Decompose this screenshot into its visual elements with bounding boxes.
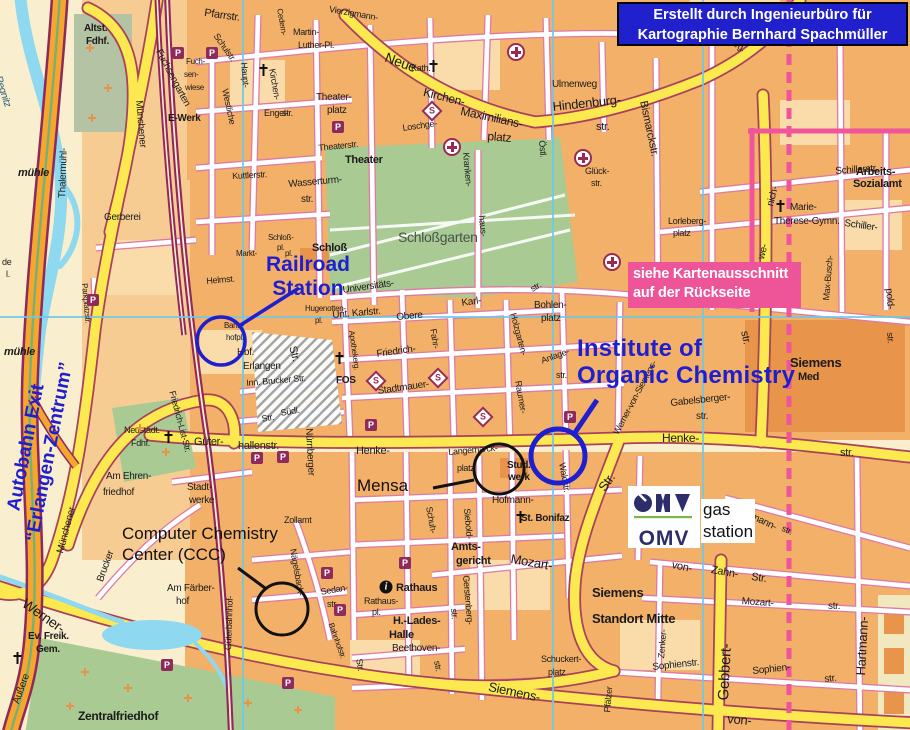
parking-icon: P (399, 557, 411, 569)
hospital-icon (603, 253, 621, 271)
railroad-station-label: Railroad Station (256, 253, 360, 300)
parking-icon: P (365, 419, 377, 431)
parking-icon: P (206, 47, 218, 59)
omv-logo: OMV (628, 486, 700, 548)
church-icon (776, 200, 785, 212)
parking-icon: P (161, 659, 173, 671)
omv-logo-glyphs (632, 489, 696, 521)
parking-icon: P (251, 452, 263, 464)
church-icon (516, 511, 525, 523)
ccc-label: Computer Chemistry Center (CCC) (122, 524, 278, 565)
sbahn-icon: S (365, 370, 386, 391)
parking-icon: P (172, 47, 184, 59)
grave-icon (88, 114, 96, 122)
grave-icon (124, 684, 132, 692)
parking-icon: P (282, 677, 294, 689)
parking-icon: P (564, 411, 576, 423)
grave-icon (66, 702, 74, 710)
sbahn-icon: S (421, 100, 442, 121)
gas-station-label: gas station (701, 499, 755, 543)
grave-icon (294, 706, 302, 714)
attribution-box: Erstellt durch Ingenieurbüro für Kartogr… (617, 2, 908, 46)
omv-logo-text: OMV (628, 528, 700, 549)
church-icon (13, 652, 22, 664)
grave-icon (104, 84, 112, 92)
hospital-icon (507, 43, 525, 61)
parking-icon: P (87, 294, 99, 306)
sbahn-icon: S (427, 367, 448, 388)
grave-icon (81, 668, 89, 676)
mensa-label: Mensa (357, 476, 408, 495)
church-icon (335, 352, 344, 364)
grave-icon (244, 699, 252, 707)
map-note-box: siehe Kartenausschnitt auf der Rückseite (628, 262, 801, 308)
grave-icon (86, 44, 94, 52)
grave-icon (162, 448, 170, 456)
parking-icon: P (332, 121, 344, 133)
parking-icon: P (277, 451, 289, 463)
hospital-icon (574, 149, 592, 167)
church-icon (164, 431, 173, 443)
church-icon (429, 60, 438, 72)
institute-label: Institute of Organic Chemistry (577, 336, 795, 390)
info-icon: i (380, 581, 393, 594)
grave-icon (184, 694, 192, 702)
church-icon (259, 64, 268, 76)
sbahn-icon: S (472, 406, 493, 427)
parking-icon: P (321, 567, 333, 579)
grave-icon (136, 424, 144, 432)
hospital-icon (443, 138, 461, 156)
city-map: Pfarrstr.Martin-Luther-Pl.NeueVierzigman… (0, 0, 910, 730)
parking-icon: P (334, 604, 346, 616)
